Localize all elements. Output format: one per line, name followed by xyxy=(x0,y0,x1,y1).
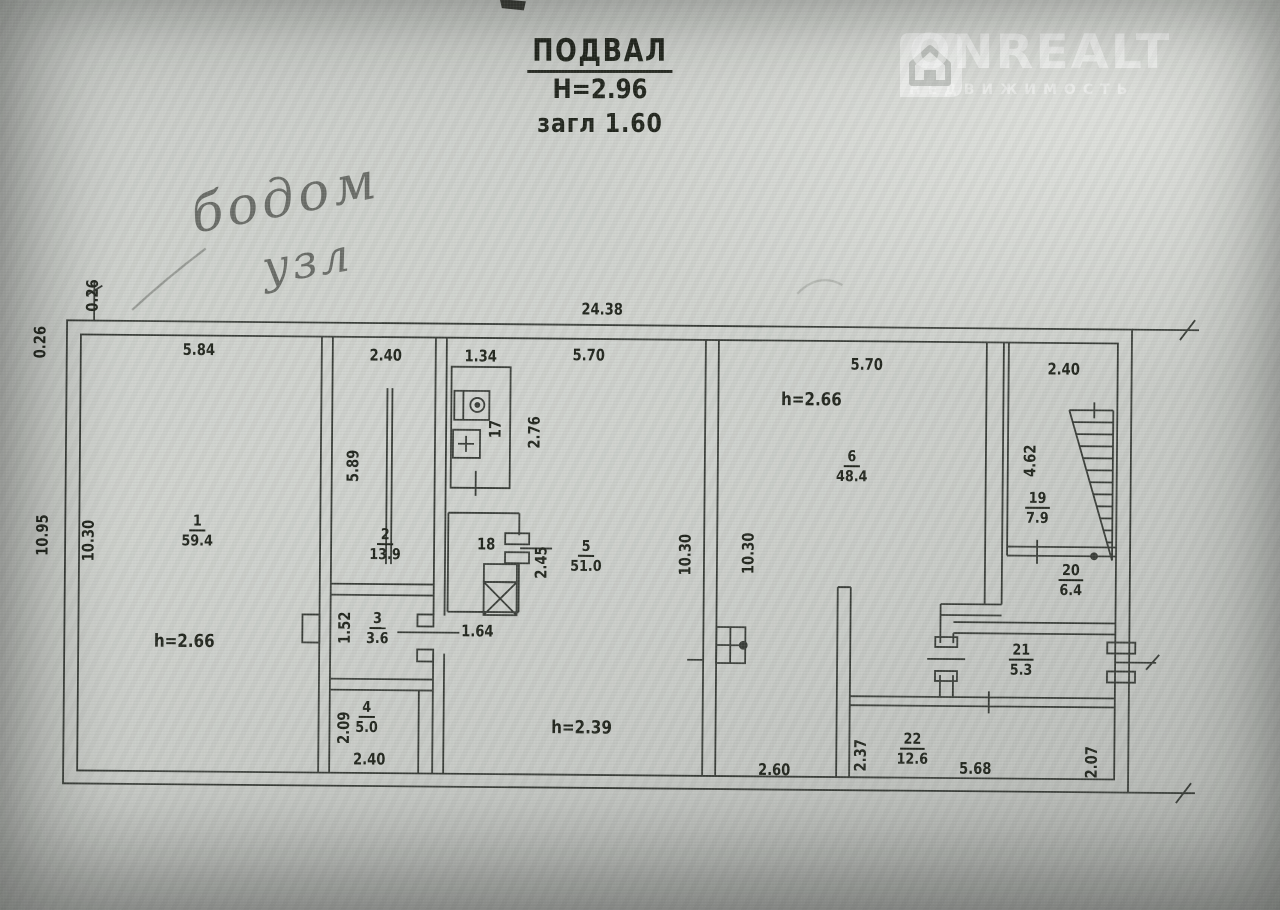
room-number: 20 xyxy=(1059,562,1084,581)
room-label-3: 3 3.6 xyxy=(366,610,389,647)
dim-room6-width: 5.70 xyxy=(850,355,883,374)
room-number: 21 xyxy=(1009,642,1034,661)
stairs-icon xyxy=(1068,402,1113,560)
toilet-icon xyxy=(454,391,489,420)
room-label-1: 1 59.4 xyxy=(181,512,213,549)
room-number: 5 xyxy=(578,538,594,557)
room-area: 48.4 xyxy=(836,467,868,485)
room-area: 5.3 xyxy=(1010,661,1033,679)
room-label-4: 4 5.0 xyxy=(355,699,378,736)
depth-note: загл 1.60 xyxy=(525,109,676,139)
title-block: ПОДВАЛ Н=2.96 загл 1.60 xyxy=(511,34,688,139)
room-area: 7.9 xyxy=(1026,509,1049,527)
walls xyxy=(63,281,1199,803)
watermark-brand: ONREALT xyxy=(909,28,1171,78)
room-number: 19 xyxy=(1025,490,1050,509)
room-label-22: 22 12.6 xyxy=(896,731,928,768)
sink-icon xyxy=(453,430,480,458)
room-area: 6.4 xyxy=(1059,581,1082,599)
note-room1-height: h=2.66 xyxy=(154,631,215,653)
door-marks-room3 xyxy=(397,614,459,662)
dim-door-width: 1.64 xyxy=(461,621,494,640)
room-area: 13.9 xyxy=(369,545,401,563)
dim-room2-depth: 5.89 xyxy=(343,450,362,483)
dim-room4-depth: 2.09 xyxy=(334,711,353,744)
dim-left-inner: 10.30 xyxy=(78,520,97,562)
dim-wc-depth: 2.76 xyxy=(524,416,543,449)
dim-room19-depth: 4.62 xyxy=(1020,444,1039,477)
dim-room3-depth: 1.52 xyxy=(335,612,354,645)
room-label-5: 5 51.0 xyxy=(570,538,602,575)
room-number: 2 xyxy=(377,526,393,545)
shaft-x-icon xyxy=(484,582,517,615)
door-marks-room21 xyxy=(927,637,965,681)
dim-room18-depth: 2.45 xyxy=(531,546,550,579)
dim-room5-right: 10.30 xyxy=(675,534,694,576)
room-number: 1 xyxy=(189,512,205,531)
room-label-21: 21 5.3 xyxy=(1009,642,1034,679)
dim-offset-top: 0.26 xyxy=(83,279,102,312)
room-number: 3 xyxy=(370,610,386,629)
room-area: 59.4 xyxy=(181,531,213,549)
room-label-6: 6 48.4 xyxy=(836,448,868,485)
shaft-box xyxy=(484,564,517,582)
dim-room4-width: 2.40 xyxy=(353,749,386,768)
room-area: 5.0 xyxy=(355,718,378,736)
room-label-20: 20 6.4 xyxy=(1058,562,1083,599)
dim-room5-width: 5.70 xyxy=(573,345,606,364)
room-area: 12.6 xyxy=(896,750,928,768)
room-number: 6 xyxy=(844,448,860,467)
note-room6-height: h=2.66 xyxy=(781,389,842,411)
ceiling-height-note: Н=2.96 xyxy=(525,75,676,105)
dim-wc-width: 1.34 xyxy=(465,346,498,365)
dim-room1-width: 5.84 xyxy=(183,340,216,359)
dim-offset-left: 0.26 xyxy=(30,326,49,359)
dim-room19-width: 2.40 xyxy=(1047,359,1080,378)
note-room5-height: h=2.39 xyxy=(551,717,612,739)
room-label-19: 19 7.9 xyxy=(1025,490,1050,527)
shaft-grid-icon xyxy=(687,627,747,664)
room-label-2: 2 13.9 xyxy=(369,526,401,563)
floorplan-photo: ПОДВАЛ Н=2.96 загл 1.60 ONREALT НЕДВИЖИМ… xyxy=(0,0,1280,910)
dim-left-outer: 10.95 xyxy=(33,514,52,556)
dim-room6-left: 10.30 xyxy=(738,532,757,574)
pencil-marks xyxy=(132,248,843,316)
photo-edge-mark xyxy=(500,0,526,10)
room-number: 22 xyxy=(900,731,925,750)
room-label-18: 18 xyxy=(477,534,495,553)
dim-overall-top: 24.38 xyxy=(581,299,623,318)
dim-room22-right: 2.07 xyxy=(1082,746,1101,779)
room-number: 4 xyxy=(359,699,375,718)
dim-room22-left: 2.37 xyxy=(851,739,870,772)
dim-room22-bottom: 5.68 xyxy=(959,759,992,778)
room-area: 3.6 xyxy=(366,629,389,647)
page-title: ПОДВАЛ xyxy=(527,34,672,73)
room-label-17: 17 xyxy=(486,420,505,438)
room-area: 51.0 xyxy=(570,557,602,575)
dim-corridor-width: 2.60 xyxy=(758,760,791,779)
watermark: ONREALT НЕДВИЖИМОСТЬ xyxy=(893,28,1161,98)
dim-room2-width: 2.40 xyxy=(370,345,403,364)
